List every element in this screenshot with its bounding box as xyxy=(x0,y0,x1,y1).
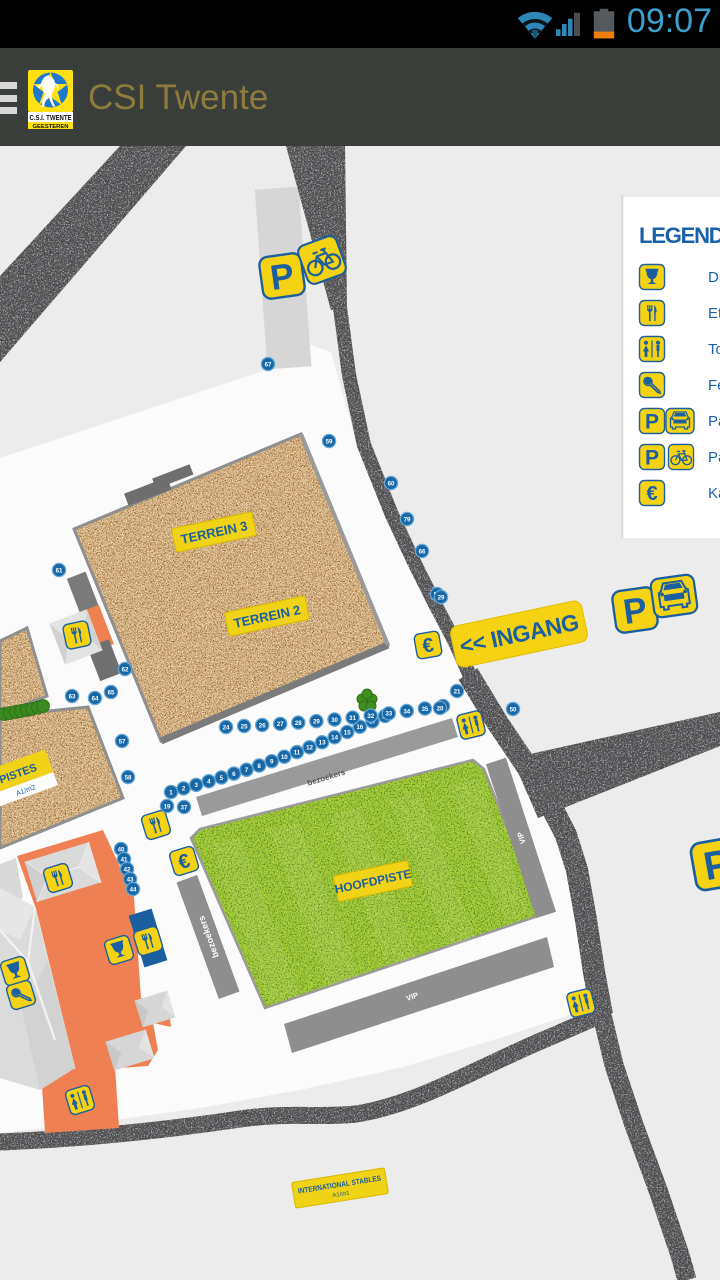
svg-text:20: 20 xyxy=(437,705,444,712)
svg-text:63: 63 xyxy=(69,693,76,700)
svg-text:Toiletten: Toiletten xyxy=(708,341,720,358)
svg-text:Eten: Eten xyxy=(708,305,720,322)
svg-text:21: 21 xyxy=(454,688,461,695)
svg-text:19: 19 xyxy=(164,803,171,810)
svg-text:59: 59 xyxy=(326,438,333,445)
svg-text:29: 29 xyxy=(313,718,320,725)
svg-text:27: 27 xyxy=(277,721,284,728)
svg-text:10: 10 xyxy=(281,754,288,761)
svg-text:7: 7 xyxy=(245,767,249,774)
svg-text:33: 33 xyxy=(385,711,392,718)
svg-text:37: 37 xyxy=(181,804,188,811)
svg-text:Parkeren auto: Parkeren auto xyxy=(708,413,720,430)
svg-text:35: 35 xyxy=(421,706,428,713)
svg-text:9: 9 xyxy=(270,759,274,766)
svg-text:LEGENDA: LEGENDA xyxy=(639,223,720,248)
svg-text:28: 28 xyxy=(295,720,302,727)
svg-text:29: 29 xyxy=(438,594,445,601)
svg-text:25: 25 xyxy=(241,723,248,730)
svg-text:58: 58 xyxy=(125,774,132,781)
svg-text:5: 5 xyxy=(220,775,224,782)
svg-text:24: 24 xyxy=(223,724,230,731)
svg-text:Kassa: Kassa xyxy=(708,485,720,502)
svg-text:31: 31 xyxy=(349,715,356,722)
svg-text:2: 2 xyxy=(182,786,186,793)
svg-text:62: 62 xyxy=(122,666,129,673)
svg-text:79: 79 xyxy=(404,516,411,523)
svg-text:15: 15 xyxy=(344,729,351,736)
svg-text:Feesttent: Feesttent xyxy=(708,377,720,394)
svg-text:64: 64 xyxy=(92,695,99,702)
svg-text:50: 50 xyxy=(510,706,517,713)
svg-text:67: 67 xyxy=(265,361,272,368)
svg-text:26: 26 xyxy=(259,722,266,729)
svg-text:C.S.I. TWENTE: C.S.I. TWENTE xyxy=(30,113,72,122)
svg-text:1: 1 xyxy=(169,789,173,796)
svg-text:57: 57 xyxy=(119,738,126,745)
svg-text:66: 66 xyxy=(419,548,426,555)
svg-text:4: 4 xyxy=(207,779,211,786)
svg-text:30: 30 xyxy=(331,717,338,724)
svg-text:8: 8 xyxy=(257,763,261,770)
svg-text:61: 61 xyxy=(56,567,63,574)
svg-text:65: 65 xyxy=(108,689,115,696)
svg-text:32: 32 xyxy=(367,713,374,720)
svg-text:12: 12 xyxy=(306,745,313,752)
svg-text:Drinken: Drinken xyxy=(708,269,720,286)
svg-text:13: 13 xyxy=(319,740,326,747)
svg-text:60: 60 xyxy=(388,480,395,487)
svg-text:11: 11 xyxy=(294,749,301,756)
svg-text:34: 34 xyxy=(403,708,410,715)
svg-text:6: 6 xyxy=(232,771,236,778)
svg-text:16: 16 xyxy=(356,724,363,731)
svg-text:44: 44 xyxy=(130,886,137,893)
svg-text:Parkeren fiets: Parkeren fiets xyxy=(708,449,720,466)
svg-text:14: 14 xyxy=(331,735,338,742)
svg-text:GEESTEREN: GEESTEREN xyxy=(33,124,69,129)
svg-text:3: 3 xyxy=(194,782,198,789)
